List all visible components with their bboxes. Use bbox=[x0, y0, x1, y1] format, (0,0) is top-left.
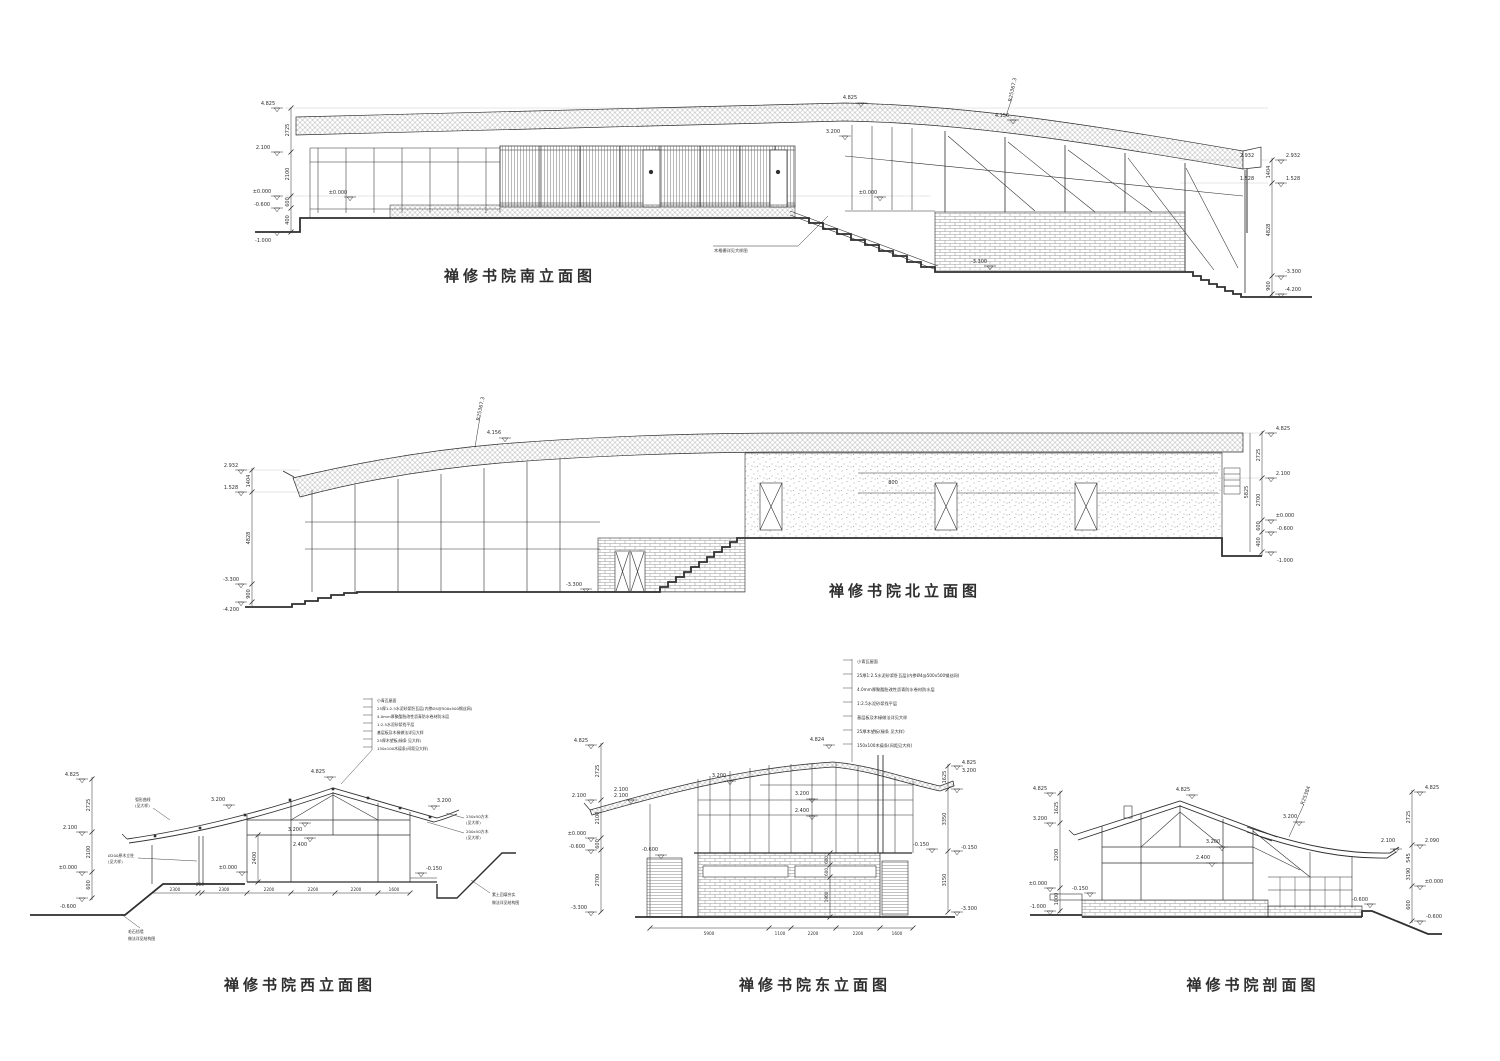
dim-label: 2200 bbox=[808, 931, 819, 936]
dim-label: 1600 bbox=[892, 931, 903, 936]
dim-label: 2200 bbox=[351, 887, 362, 892]
roof-radius-label: R25367.3 bbox=[476, 396, 487, 421]
level-label: 4.156 bbox=[995, 113, 1009, 119]
timber-frame bbox=[152, 792, 410, 884]
roof-band bbox=[590, 762, 954, 815]
level-label: 3.200 bbox=[437, 798, 451, 804]
roof-note: 4.0mm厚聚酯胎改性沥青防水卷材防水层 bbox=[857, 686, 935, 693]
dim-label: 800 bbox=[888, 480, 898, 486]
level-label: -3.300 bbox=[971, 259, 987, 265]
north-elevation-drawing: 4.156 R25367.3 800 -3.300 2.932 1.528 -3… bbox=[223, 396, 1294, 613]
chimney bbox=[1124, 806, 1132, 818]
level-label: 2.932 bbox=[1240, 153, 1254, 159]
dim-label: 600 bbox=[1406, 900, 1412, 910]
dim-label: 2725 bbox=[285, 124, 291, 137]
dim-label: 400 bbox=[1256, 537, 1262, 547]
dim-label: 600 bbox=[595, 839, 601, 849]
roof-note: 1:2.5水泥砂浆找平层 bbox=[377, 722, 414, 727]
roof-note: 25厚1:2.5水泥砂浆卧瓦层(内掺Ø4@500x500钢丝网) bbox=[377, 706, 473, 711]
dim-label: 2200 bbox=[308, 887, 319, 892]
dim-label: 1404 bbox=[1266, 166, 1272, 179]
dimension-chain-right: 2.932 1.528 -3.300 -4.200 2.932 1.528 14… bbox=[1240, 153, 1301, 298]
note: 素土回填夯实 bbox=[492, 892, 515, 897]
dim-label: 4828 bbox=[1266, 224, 1272, 237]
level-label: 4.825 bbox=[261, 101, 275, 107]
level-label: 2.932 bbox=[1286, 153, 1300, 159]
level-label: 4.825 bbox=[1033, 786, 1047, 792]
level-label: 4.825 bbox=[1176, 787, 1190, 793]
ground-line bbox=[30, 884, 245, 915]
dim-label: 5900 bbox=[704, 931, 715, 936]
dim-label: 3200 bbox=[1054, 849, 1060, 862]
dim-label: 2725 bbox=[595, 765, 601, 778]
roof-note-block: 小青瓦屋面 25厚1:2.5水泥砂浆卧瓦层(内掺Ø4@500x500钢丝网) 4… bbox=[341, 698, 473, 784]
level-label: 3.200 bbox=[962, 768, 976, 774]
strip-window bbox=[703, 866, 788, 877]
note: 做法详见结构图 bbox=[492, 900, 519, 905]
dim-label: 2400 bbox=[252, 852, 258, 865]
level-label: 2.100 bbox=[63, 825, 77, 831]
level-label: 3.200 bbox=[1283, 814, 1297, 820]
dim-label: 1404 bbox=[246, 475, 252, 488]
level-label: ±0.000 bbox=[253, 189, 272, 195]
roof-note: 1:2.5水泥砂浆找平层 bbox=[857, 700, 897, 707]
inner-dim-2400: 2400 bbox=[252, 833, 261, 885]
level-label: 2.400 bbox=[795, 808, 809, 814]
level-label: -0.150 bbox=[426, 866, 442, 872]
level-label: 2.100 bbox=[572, 793, 586, 799]
roof-note: 4.0mm厚聚酯胎改性沥青防水卷材防水层 bbox=[377, 714, 449, 719]
level-label: ±0.000 bbox=[1276, 513, 1295, 519]
roof-note: 25厚木望板(椽条 见大样) bbox=[377, 738, 422, 743]
roof-radius-label: R25367.3 bbox=[1008, 77, 1019, 102]
level-label: ±0.000 bbox=[568, 831, 587, 837]
dim-label: 1625 bbox=[942, 771, 948, 784]
level-label: 2.932 bbox=[224, 463, 238, 469]
dim-label: 400 bbox=[285, 215, 291, 225]
dimension-chain-right: 4.825 2.090 ±0.000 -0.600 2725 545 3190 … bbox=[1406, 785, 1443, 925]
level-label: 3.200 bbox=[826, 129, 840, 135]
dim-label: 1600 bbox=[389, 887, 400, 892]
level-label: 2.090 bbox=[1425, 838, 1439, 844]
south-elevation-drawing: ±0.000 ±0.000 4.825 3.200 4.156 -3.300 R… bbox=[253, 77, 1312, 297]
dim-label: 545 bbox=[1406, 853, 1412, 863]
level-label: 3.200 bbox=[288, 827, 302, 833]
level-label: 3.200 bbox=[1033, 816, 1047, 822]
north-elevation-title: 禅修书院北立面图 bbox=[828, 582, 981, 600]
dim-label: 2100 bbox=[285, 168, 291, 181]
dim-label: 600 bbox=[824, 856, 829, 864]
dim-label: 600 bbox=[285, 197, 291, 207]
roof-note: 小青瓦屋面 bbox=[377, 698, 397, 703]
level-label: 2.100 bbox=[614, 793, 628, 799]
level-label: ±0.000 bbox=[219, 865, 238, 871]
level-label: ±0.000 bbox=[329, 190, 348, 196]
roof-note: 25厚木望板(椽条 见大样) bbox=[857, 728, 905, 735]
dim-label: 900 bbox=[246, 589, 252, 599]
dim-label: 1625 bbox=[1054, 802, 1060, 815]
level-label: 3.200 bbox=[211, 797, 225, 803]
east-elevation-title: 禅修书院东立面图 bbox=[738, 976, 891, 994]
bottom-dimension-chain: 5900 1100 2200 2200 1600 bbox=[648, 926, 916, 937]
dim-label: 3150 bbox=[942, 874, 948, 887]
roof-note: 小青瓦屋面 bbox=[857, 658, 878, 665]
slat-screen-right bbox=[882, 861, 908, 915]
dimension-chain-left: 4.825 2.100 ±0.000 -0.600 -1.000 2725 21… bbox=[253, 101, 294, 244]
section-title: 禅修书院剖面图 bbox=[1185, 976, 1319, 994]
note: (见大样) bbox=[108, 859, 123, 864]
level-label: -0.600 bbox=[254, 202, 270, 208]
level-label: 4.825 bbox=[843, 95, 857, 101]
level-label: -0.150 bbox=[961, 845, 977, 851]
dimension-chain-left: 4.825 3.200 ±0.000 -1.000 1625 3200 1000 bbox=[1029, 786, 1063, 915]
level-label: -0.600 bbox=[569, 844, 585, 850]
dim-label: 5825 bbox=[1244, 486, 1250, 499]
level-label: -1.000 bbox=[1277, 558, 1293, 564]
level-label: -0.600 bbox=[642, 847, 658, 853]
level-label: 1.528 bbox=[224, 485, 238, 491]
dim-label: 200 bbox=[196, 882, 204, 887]
roof bbox=[1069, 801, 1399, 858]
masonry-base bbox=[698, 853, 880, 917]
level-label: 2.400 bbox=[293, 842, 307, 848]
level-label: 4.825 bbox=[1276, 426, 1290, 432]
level-label: 3.200 bbox=[795, 791, 809, 797]
ground-line bbox=[245, 538, 1262, 607]
level-label: 2.100 bbox=[614, 787, 628, 793]
dim-label: 2725 bbox=[1256, 449, 1262, 462]
level-label: ±0.000 bbox=[859, 190, 878, 196]
strip-window bbox=[795, 866, 876, 877]
level-label: 4.825 bbox=[962, 760, 976, 766]
dim-label: 1100 bbox=[775, 931, 786, 936]
level-label: -0.150 bbox=[913, 842, 929, 848]
dimension-chain-left: 4.825 2.100 ±0.000 -0.600 2725 2100 600 bbox=[59, 772, 95, 910]
dim-label: 2700 bbox=[1256, 494, 1262, 507]
dim-label: 2200 bbox=[264, 887, 275, 892]
note: 毛石挡墙 bbox=[128, 929, 144, 934]
end-vent bbox=[1224, 468, 1240, 494]
level-label: 3.200 bbox=[712, 773, 726, 779]
dimension-chain-left: 4.825 2.100 ±0.000 -0.600 -3.300 2725 21… bbox=[568, 738, 604, 916]
platform-brick-low bbox=[1268, 906, 1362, 917]
level-label: 1.528 bbox=[1286, 176, 1300, 182]
roof-note-block: 小青瓦屋面 25厚1:2.5水泥砂浆卧瓦层(内掺Ø4@500x500钢丝网) 4… bbox=[843, 658, 960, 762]
level-label: -4.200 bbox=[223, 607, 239, 613]
level-label: 4.824 bbox=[810, 737, 824, 743]
dim-label: 2700 bbox=[595, 874, 601, 887]
dim-label: 3190 bbox=[1406, 868, 1412, 881]
level-label: ±0.000 bbox=[1029, 881, 1048, 887]
level-label: -3.300 bbox=[961, 906, 977, 912]
level-label: -0.600 bbox=[1426, 914, 1442, 920]
note: 250x50方木 bbox=[466, 814, 489, 819]
dim-label: 4828 bbox=[246, 532, 252, 545]
note: 弧形曲线 bbox=[135, 797, 151, 802]
dim-label: 600 bbox=[86, 880, 92, 890]
level-label: ±0.000 bbox=[59, 865, 78, 871]
note: (见大样) bbox=[466, 820, 481, 825]
dim-label: 600 bbox=[1256, 521, 1262, 531]
dim-label: 2200 bbox=[853, 931, 864, 936]
roof-note: 基层板及木椽做法详见大样 bbox=[857, 714, 907, 721]
roof-radius-label: R25384 bbox=[1300, 786, 1312, 806]
dim-label: 2100 bbox=[595, 812, 601, 825]
west-elevation-drawing: 小青瓦屋面 25厚1:2.5水泥砂浆卧瓦层(内掺Ø4@500x500钢丝网) 4… bbox=[30, 698, 519, 994]
dimension-chain-left: 2.932 1.528 -3.300 -4.200 1404 4828 900 bbox=[223, 463, 255, 613]
level-label: -3.300 bbox=[566, 582, 582, 588]
drawing-sheet: ±0.000 ±0.000 4.825 3.200 4.156 -3.300 R… bbox=[0, 0, 1500, 1061]
level-label: -0.150 bbox=[1072, 886, 1088, 892]
level-label: 4.156 bbox=[487, 430, 501, 436]
level-label: -1.000 bbox=[1030, 904, 1046, 910]
dim-label: 3350 bbox=[942, 813, 948, 826]
level-label: -0.600 bbox=[60, 904, 76, 910]
level-label: 2.100 bbox=[256, 145, 270, 151]
level-label: -4.200 bbox=[1285, 287, 1301, 293]
level-label: 2.400 bbox=[1196, 855, 1210, 861]
platform-brick bbox=[1082, 900, 1268, 917]
level-label: 2.100 bbox=[1276, 471, 1290, 477]
level-label: 4.825 bbox=[1425, 785, 1439, 791]
dim-label: 2100 bbox=[86, 846, 92, 859]
level-label: -0.600 bbox=[1277, 526, 1293, 532]
dimension-chain-right: 4.825 2.100 ±0.000 -0.600 -1.000 2725 58… bbox=[1244, 426, 1294, 564]
level-label: 4.825 bbox=[574, 738, 588, 744]
level-label: -3.300 bbox=[223, 577, 239, 583]
roof-note: 150x100木檩条(间距见大样) bbox=[377, 746, 429, 751]
level-label: 2.100 bbox=[1381, 838, 1395, 844]
level-label: ±0.000 bbox=[1425, 879, 1444, 885]
level-label: -1.000 bbox=[255, 238, 271, 244]
dim-label: 1000 bbox=[1054, 893, 1060, 906]
roof-note: 150x100木檩条(间距见大样) bbox=[857, 742, 913, 749]
elevations-canvas: ±0.000 ±0.000 4.825 3.200 4.156 -3.300 R… bbox=[0, 0, 1500, 1061]
note: 做法详见结构图 bbox=[128, 936, 155, 941]
lattice-base-strip bbox=[390, 205, 795, 218]
entry-door bbox=[615, 551, 645, 592]
note: (见大样) bbox=[466, 835, 481, 840]
side-notes: 弧形曲线 (见大样) Ø200原木立柱 (见大样) 250x50方木 (见大样)… bbox=[108, 797, 519, 941]
level-label: 4.825 bbox=[65, 772, 79, 778]
slat-screen-left bbox=[647, 858, 682, 917]
east-elevation-drawing: 小青瓦屋面 25厚1:2.5水泥砂浆卧瓦层(内掺Ø4@500x500钢丝网) 4… bbox=[568, 658, 977, 994]
dim-label: 1900 bbox=[824, 891, 829, 902]
dim-label: 2300 bbox=[170, 887, 181, 892]
roof-note: 25厚1:2.5水泥砂浆卧瓦层(内掺Ø4@500x500钢丝网) bbox=[857, 672, 960, 679]
dim-label: 2300 bbox=[219, 887, 230, 892]
dim-label: 2725 bbox=[1406, 811, 1412, 824]
level-label: -3.300 bbox=[571, 905, 587, 911]
section-drawing: R25384 4.825 3.200 3.200 2.400 2.100 -0.… bbox=[1029, 785, 1444, 994]
note: Ø200原木立柱 bbox=[108, 853, 134, 858]
roof-note: 基层板及木椽做法详见大样 bbox=[377, 730, 424, 735]
level-label: 3.200 bbox=[1206, 839, 1220, 845]
screen-note: 木格栅详见大样图 bbox=[714, 247, 748, 254]
west-elevation-title: 禅修书院西立面图 bbox=[223, 976, 376, 994]
dim-label: 600 bbox=[824, 868, 829, 876]
level-label: 4.825 bbox=[311, 769, 325, 775]
level-label: 1.528 bbox=[1240, 176, 1254, 182]
note: 200x50方木 bbox=[466, 829, 489, 834]
level-label: -3.300 bbox=[1285, 269, 1301, 275]
dim-label: 2725 bbox=[86, 799, 92, 812]
south-elevation-title: 禅修书院南立面图 bbox=[443, 267, 596, 285]
dim-label: 900 bbox=[1266, 281, 1272, 291]
note: (见大样) bbox=[135, 803, 150, 808]
level-label: -0.600 bbox=[1352, 897, 1368, 903]
stucco-wall bbox=[745, 453, 1222, 538]
